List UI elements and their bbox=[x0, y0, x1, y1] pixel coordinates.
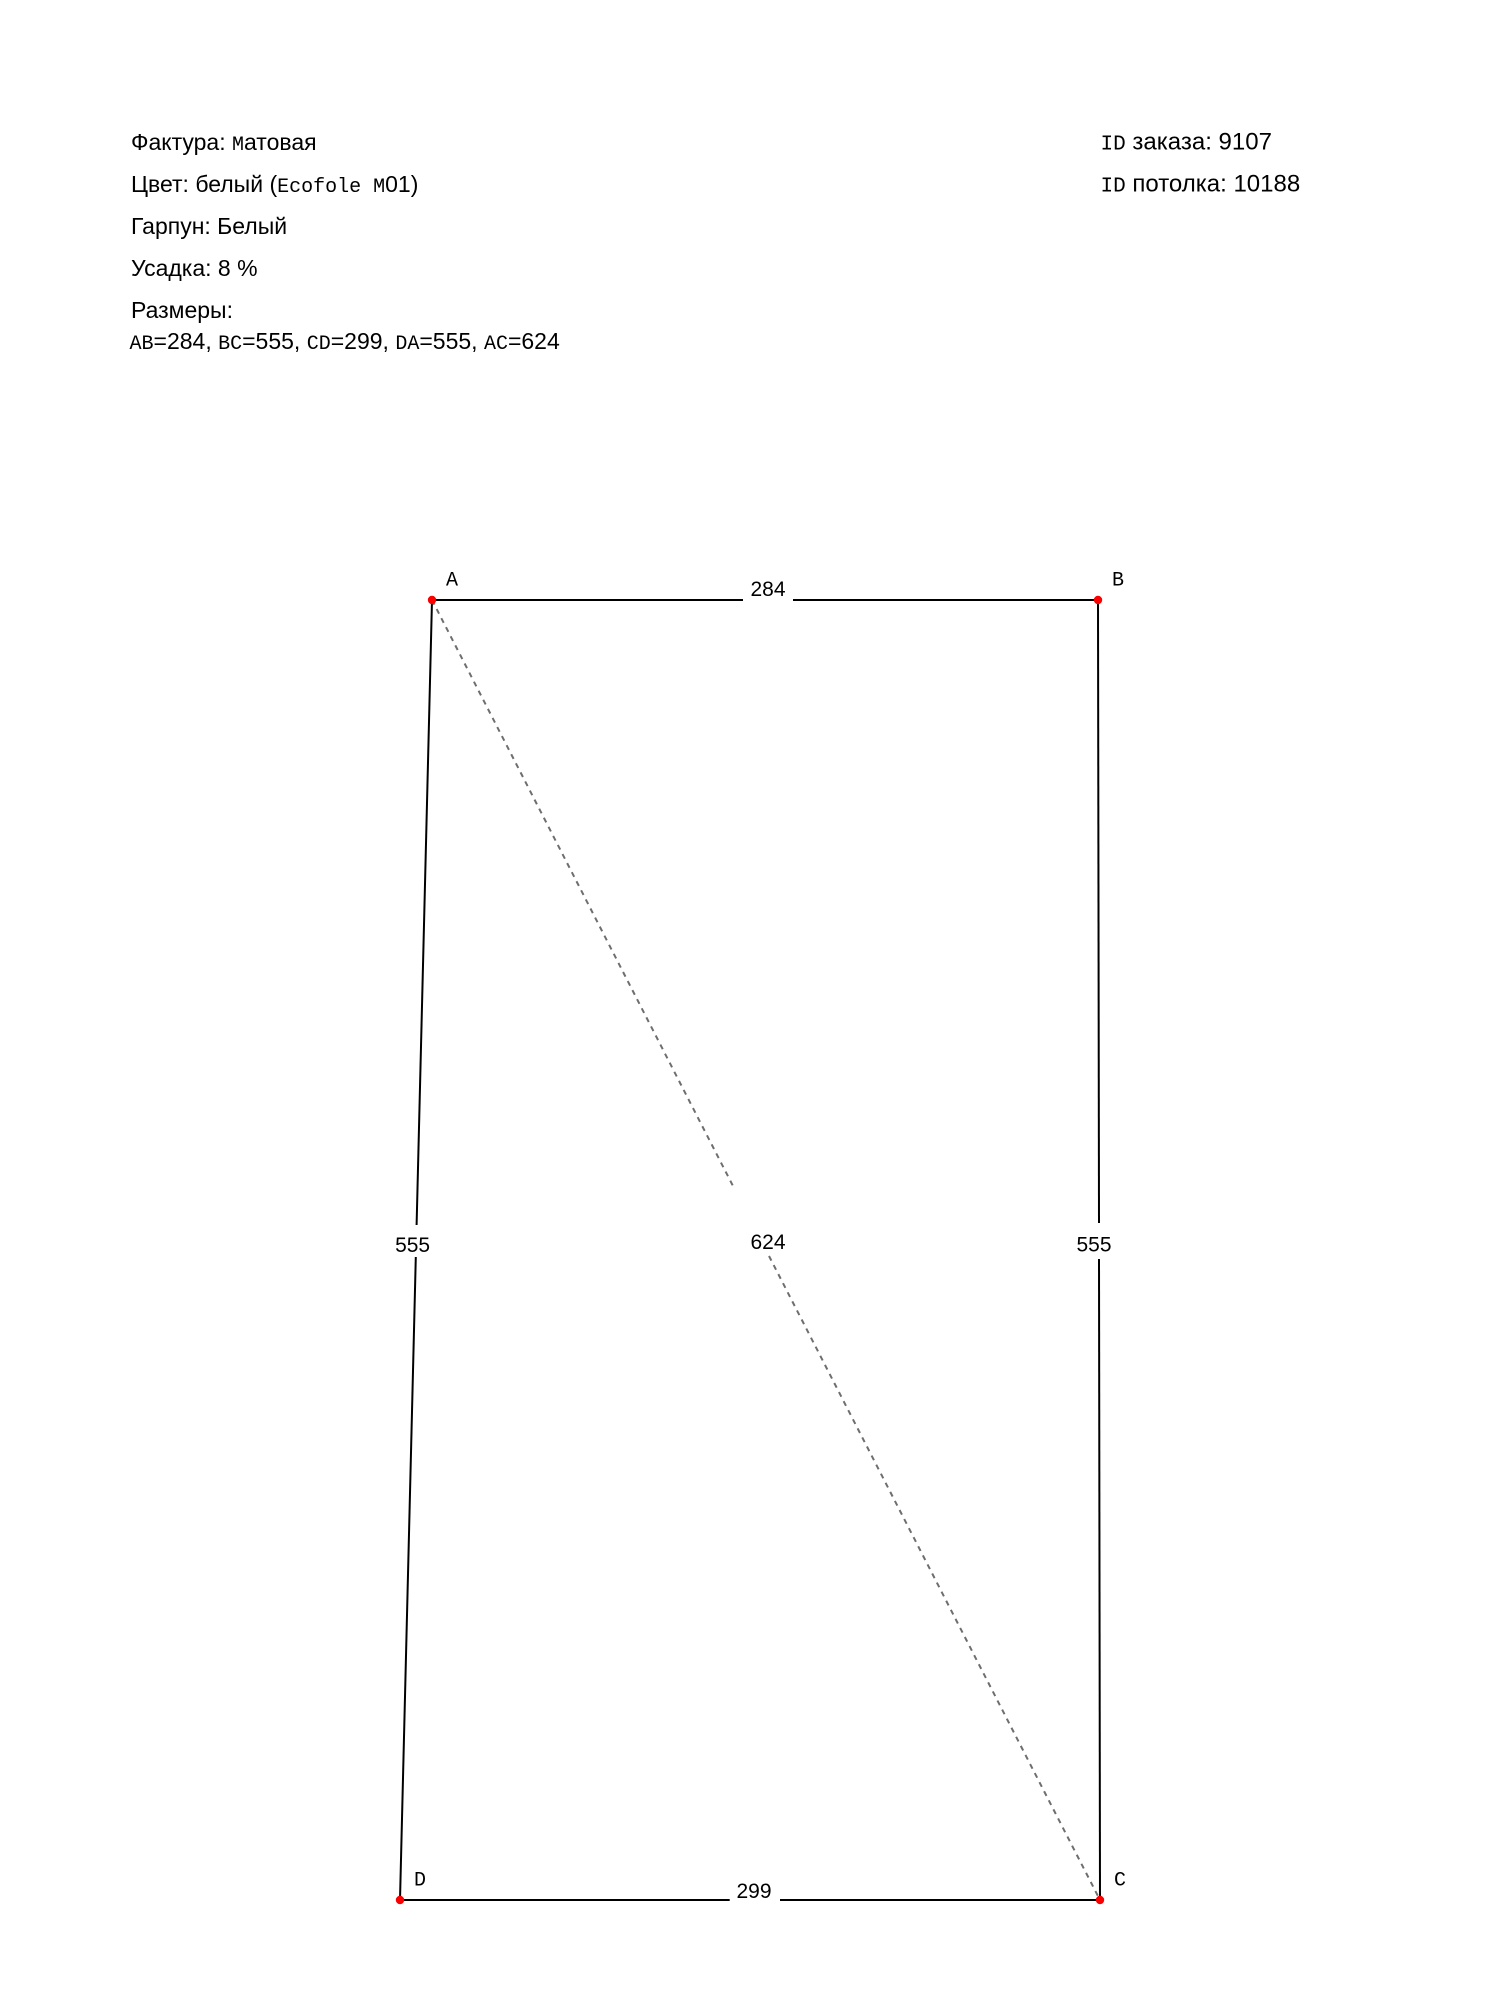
svg-text:C: C bbox=[1114, 1870, 1126, 1893]
svg-text:Цвет: белый (Ecofole М01): Цвет: белый (Ecofole М01) bbox=[131, 171, 418, 199]
svg-text:ID потолка: 10188: ID потолка: 10188 bbox=[1101, 171, 1301, 199]
svg-text:Усадка: 8 %: Усадка: 8 % bbox=[131, 255, 258, 281]
svg-text:D: D bbox=[414, 1870, 426, 1893]
svg-text:B: B bbox=[1112, 570, 1124, 593]
svg-text:ID заказа: 9107: ID заказа: 9107 bbox=[1101, 129, 1272, 157]
svg-text:AB=284, BC=555, CD=299, DA=555: AB=284, BC=555, CD=299, DA=555, AC=624 bbox=[130, 328, 560, 356]
svg-text:299: 299 bbox=[736, 1880, 771, 1903]
svg-text:624: 624 bbox=[750, 1231, 785, 1254]
svg-text:Фактура: Матовая: Фактура: Матовая bbox=[131, 129, 317, 157]
svg-text:555: 555 bbox=[395, 1234, 430, 1257]
svg-text:555: 555 bbox=[1076, 1234, 1111, 1257]
svg-text:Гарпун: Белый: Гарпун: Белый bbox=[131, 213, 287, 239]
svg-text:284: 284 bbox=[750, 578, 785, 601]
svg-text:A: A bbox=[446, 570, 458, 593]
svg-text:Размеры:: Размеры: bbox=[131, 297, 233, 323]
